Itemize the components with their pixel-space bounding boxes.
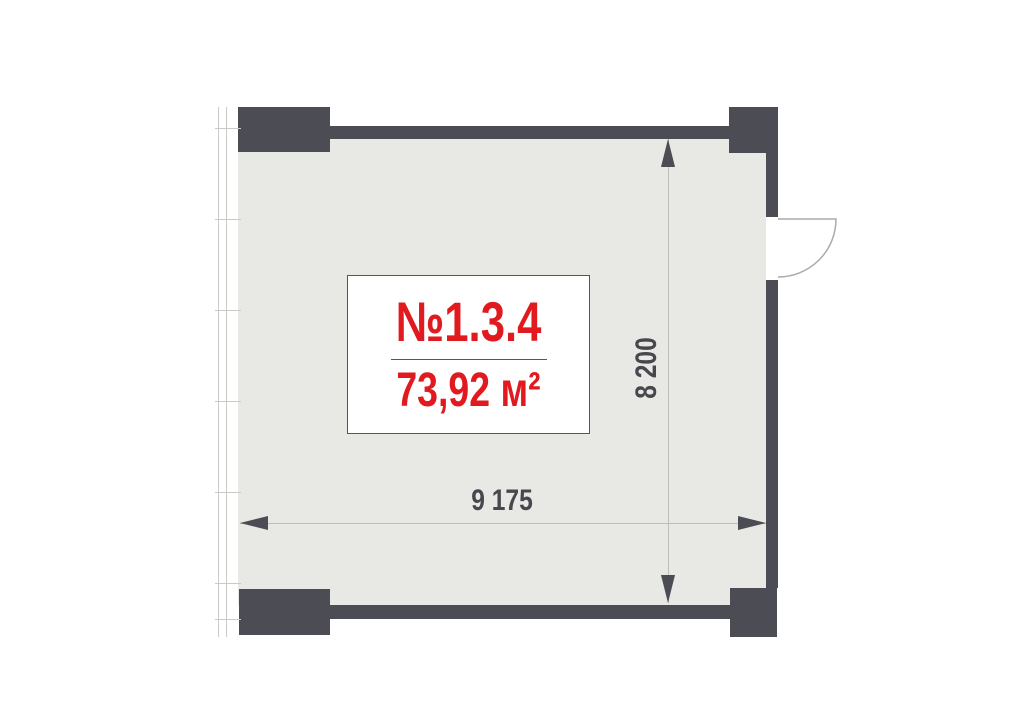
dimension-arrow-left-icon: [240, 516, 268, 530]
unit-area: 73,92 м²: [396, 367, 540, 415]
unit-label-box: №1.3.4 73,92 м²: [347, 275, 590, 434]
window-mullion: [215, 619, 241, 620]
unit-label-divider: [391, 359, 547, 360]
window-mullion: [215, 583, 241, 584]
unit-number: №1.3.4: [396, 294, 542, 350]
glazing-line-inner: [226, 107, 227, 637]
window-mullion: [215, 128, 241, 129]
column-bottom-left: [239, 589, 330, 635]
height-dimension-line: [668, 139, 669, 603]
dimension-arrow-up-icon: [661, 139, 675, 167]
column-top-right: [729, 107, 778, 153]
window-mullion: [215, 310, 241, 311]
column-bottom-right: [730, 588, 777, 637]
wall-right-above-door: [766, 153, 778, 217]
floor-plan-canvas: 8 200 9 175 №1.3.4 73,92 м²: [0, 0, 1024, 724]
door-leaf-and-arc: [778, 219, 836, 277]
column-top-left: [238, 107, 330, 152]
wall-bottom: [330, 605, 732, 619]
height-dimension-label: 8 200: [632, 337, 662, 399]
window-mullion: [215, 401, 241, 402]
dimension-arrow-right-icon: [738, 516, 766, 530]
door-swing: [778, 217, 840, 281]
glazing-line-outer: [218, 107, 219, 637]
dimension-arrow-down-icon: [661, 575, 675, 603]
window-mullion: [215, 219, 241, 220]
window-mullion: [215, 492, 241, 493]
wall-top: [330, 126, 732, 139]
width-dimension-label: 9 175: [471, 486, 533, 516]
wall-right-below-door: [766, 280, 778, 588]
width-dimension-line: [240, 523, 766, 524]
